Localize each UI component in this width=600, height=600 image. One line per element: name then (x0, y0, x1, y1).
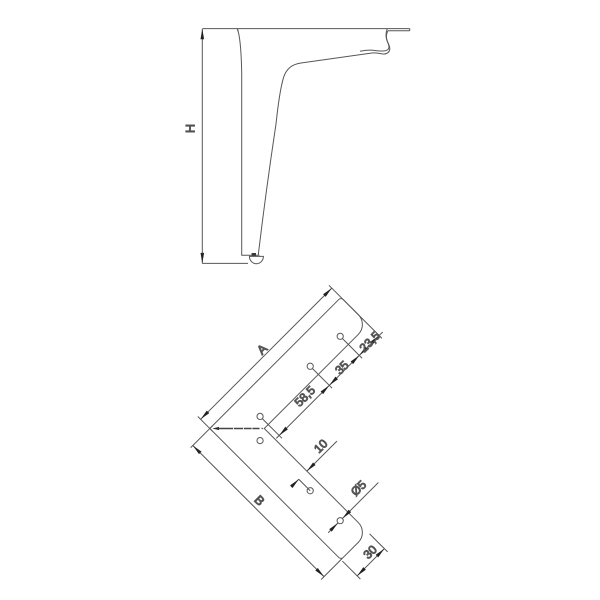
svg-text:30: 30 (360, 542, 380, 562)
svg-text:Ø5: Ø5 (348, 477, 369, 498)
svg-text:58,5: 58,5 (292, 383, 319, 410)
svg-text:H: H (184, 124, 198, 133)
svg-text:10: 10 (311, 436, 331, 456)
svg-text:A: A (254, 341, 270, 357)
svg-text:35: 35 (332, 358, 352, 378)
